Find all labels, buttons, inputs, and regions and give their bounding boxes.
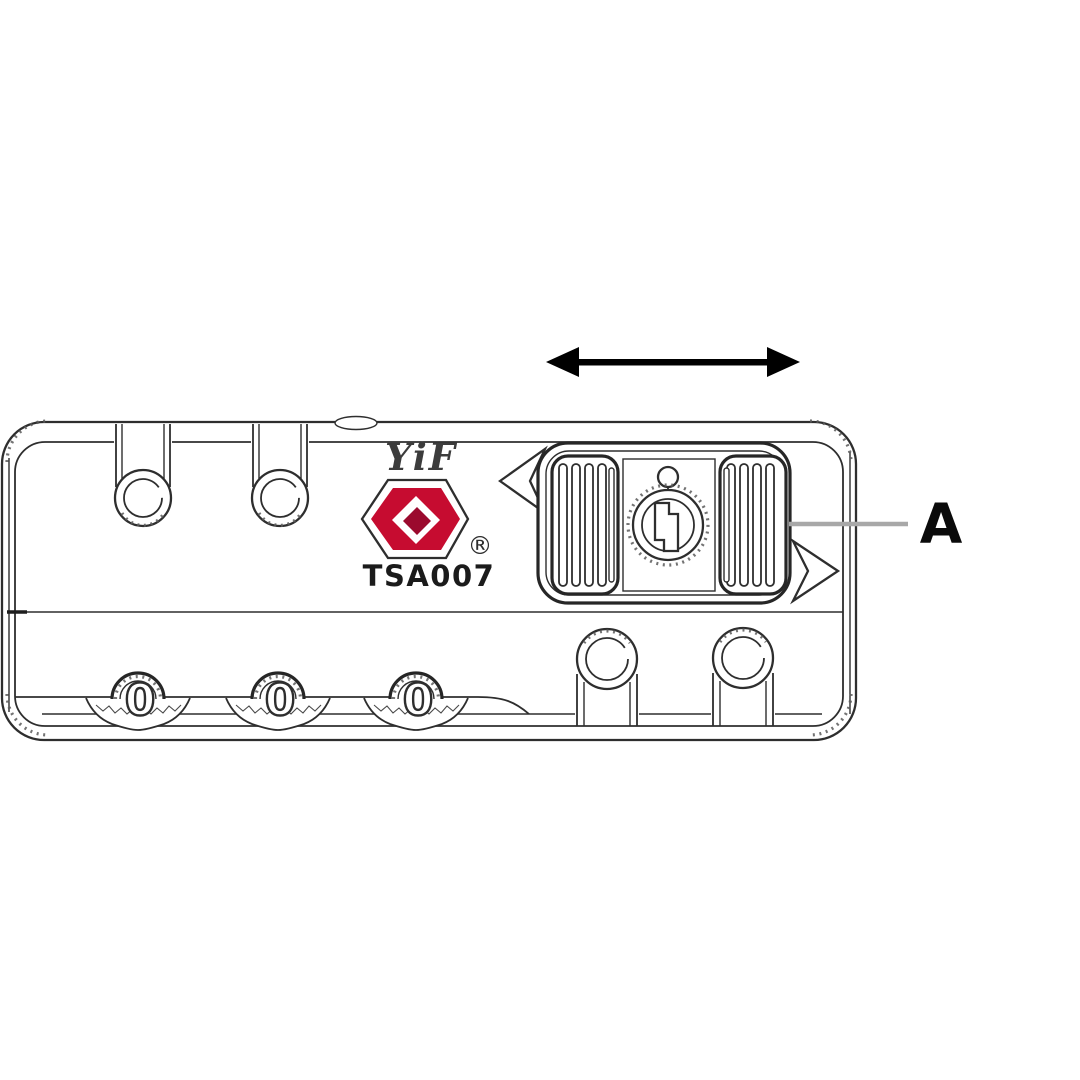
arrow-head-right [767, 347, 800, 377]
part-a-label: A [920, 492, 963, 556]
grip-rib [724, 468, 729, 582]
model-number-text: TSA007 [363, 559, 496, 593]
top-rivet-left [114, 424, 172, 526]
tsa-lock-diagram: 0 0 0 [0, 0, 1080, 1080]
grip-rib [766, 464, 774, 586]
registered-trademark-symbol: ® [468, 531, 493, 560]
slide-button [538, 443, 790, 603]
grip-rib [585, 464, 593, 586]
lock-drawing: 0 0 0 [0, 0, 1080, 1080]
keyhole-pin-circle [658, 467, 678, 487]
grip-rib [598, 464, 606, 586]
dial-digit: 0 [125, 675, 156, 726]
grip-rib [559, 464, 567, 586]
bottom-rivet-right [711, 628, 775, 726]
grip-rib [609, 468, 614, 582]
top-rivet-right [251, 424, 309, 526]
bottom-rivet-left [575, 629, 639, 726]
arrow-shaft [570, 359, 776, 366]
grip-rib [572, 464, 580, 586]
arrow-head-left [546, 347, 579, 377]
slide-direction-arrow-icon [546, 347, 800, 377]
dial-digit: 0 [403, 675, 434, 726]
brand-name-text: YiF [385, 435, 458, 479]
grip-rib [753, 464, 761, 586]
grip-rib [740, 464, 748, 586]
grip-pad-left [552, 456, 618, 594]
grip-pad-right [720, 456, 786, 594]
top-oval-detail [335, 417, 377, 430]
dial-digit: 0 [265, 675, 296, 726]
